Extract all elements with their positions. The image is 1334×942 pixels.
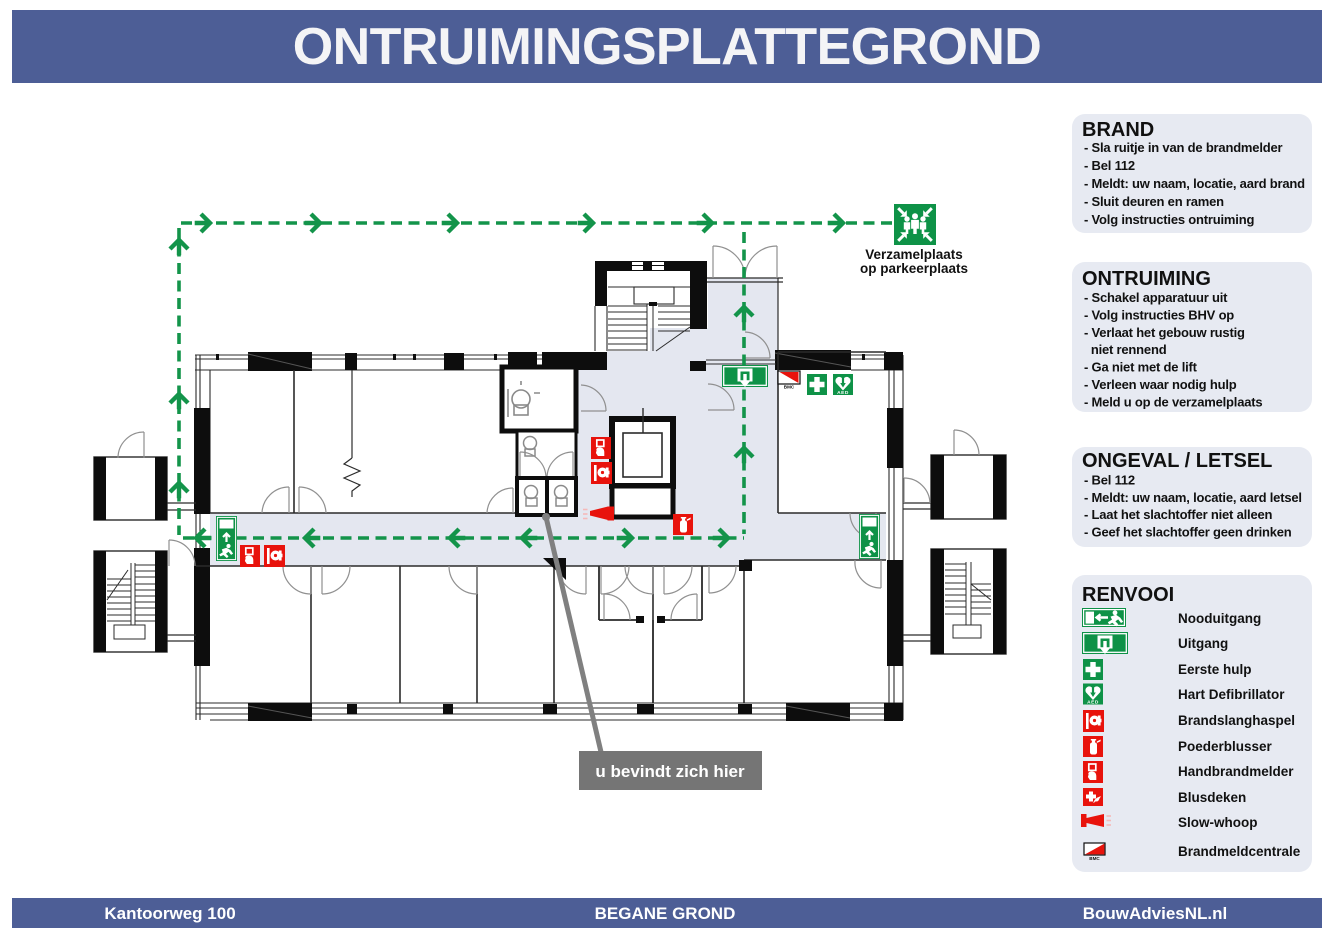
svg-text:RENVOOI: RENVOOI (1082, 584, 1174, 606)
svg-text:BEGANE GROND: BEGANE GROND (595, 904, 736, 923)
svg-text:- Meldt: uw naam, locatie, aar: - Meldt: uw naam, locatie, aard letsel (1084, 490, 1302, 505)
svg-text:Eerste hulp: Eerste hulp (1178, 662, 1252, 677)
svg-text:- Geef het slachtoffer geen dr: - Geef het slachtoffer geen drinken (1084, 524, 1292, 539)
svg-text:Poederblusser: Poederblusser (1178, 739, 1273, 754)
svg-text:op parkeerplaats: op parkeerplaats (860, 261, 968, 276)
svg-text:- Schakel apparatuur uit: - Schakel apparatuur uit (1084, 290, 1228, 305)
svg-text:Uitgang: Uitgang (1178, 636, 1228, 651)
svg-text:ONGEVAL / LETSEL: ONGEVAL / LETSEL (1082, 450, 1272, 472)
svg-text:- Verleen waar nodig hulp: - Verleen waar nodig hulp (1084, 377, 1237, 392)
svg-text:BRAND: BRAND (1082, 119, 1154, 141)
svg-text:- Verlaat het gebouw rustig: - Verlaat het gebouw rustig (1084, 325, 1245, 340)
svg-text:ONTRUIMING: ONTRUIMING (1082, 268, 1211, 290)
svg-text:- Volg instructies ontruiming: - Volg instructies ontruiming (1084, 212, 1254, 227)
svg-text:Brandmeldcentrale: Brandmeldcentrale (1178, 844, 1301, 859)
svg-text:Handbrandmelder: Handbrandmelder (1178, 764, 1294, 779)
svg-text:- Sla ruitje in van de brandme: - Sla ruitje in van de brandmelder (1084, 140, 1283, 155)
svg-text:Brandslanghaspel: Brandslanghaspel (1178, 713, 1295, 728)
svg-text:niet rennend: niet rennend (1084, 342, 1167, 357)
svg-text:- Bel 112: - Bel 112 (1084, 158, 1135, 173)
svg-text:Nooduitgang: Nooduitgang (1178, 611, 1261, 626)
svg-text:- Meldt: uw naam, locatie, aar: - Meldt: uw naam, locatie, aard brand (1084, 176, 1305, 191)
svg-text:- Sluit deuren en ramen: - Sluit deuren en ramen (1084, 194, 1224, 209)
svg-text:Blusdeken: Blusdeken (1178, 790, 1246, 805)
svg-text:- Meld u op de verzamelplaats: - Meld u op de verzamelplaats (1084, 394, 1262, 409)
svg-text:Kantoorweg 100: Kantoorweg 100 (104, 904, 235, 923)
svg-text:Verzamelplaats: Verzamelplaats (865, 247, 963, 262)
svg-text:Slow-whoop: Slow-whoop (1178, 815, 1257, 830)
svg-text:- Laat het slachtoffer niet al: - Laat het slachtoffer niet alleen (1084, 507, 1273, 522)
svg-text:u bevindt zich hier: u bevindt zich hier (595, 762, 745, 781)
svg-text:Hart Defibrillator: Hart Defibrillator (1178, 687, 1285, 702)
svg-text:- Bel 112: - Bel 112 (1084, 473, 1135, 488)
svg-text:BouwAdviesNL.nl: BouwAdviesNL.nl (1083, 904, 1228, 923)
svg-text:- Ga niet met de lift: - Ga niet met de lift (1084, 360, 1198, 375)
svg-text:- Volg instructies BHV op: - Volg instructies BHV op (1084, 307, 1234, 322)
svg-text:ONTRUIMINGSPLATTEGROND: ONTRUIMINGSPLATTEGROND (293, 18, 1041, 76)
